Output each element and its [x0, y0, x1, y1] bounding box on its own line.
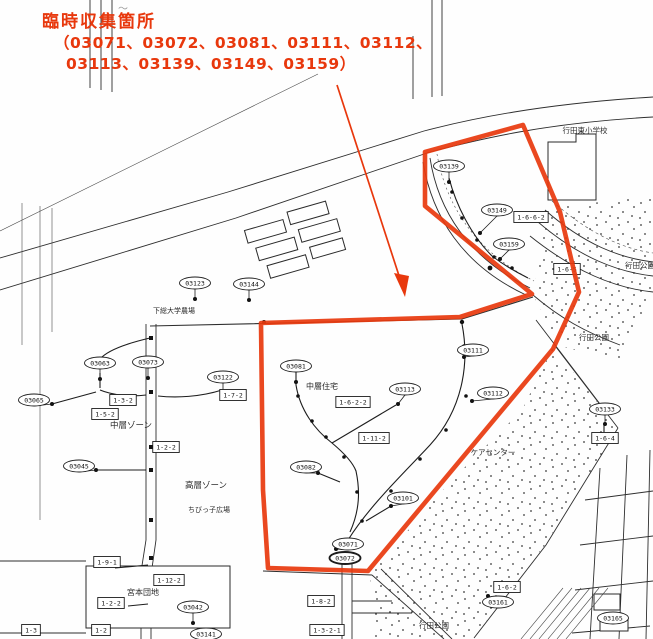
- collection-point-label: 03101: [388, 492, 419, 508]
- map-shape: 03133: [595, 405, 615, 413]
- route-number-label: 1-3-2-1: [310, 625, 344, 636]
- map-shape: [324, 435, 328, 439]
- map-shape: [296, 394, 300, 398]
- collection-point-label: 03072: [330, 552, 361, 564]
- route-number-label: 1-6-2: [494, 582, 521, 593]
- map-shape: 1-7-2: [223, 391, 243, 399]
- map-shape: 1-5-2: [95, 410, 115, 418]
- annotation-codes-line2: 03113、03139、03149、03159）: [66, 54, 432, 75]
- map-shape: [149, 518, 153, 522]
- map-shape: 03113: [395, 385, 415, 393]
- collection-point-label: 03081: [281, 360, 312, 384]
- map-shape: [318, 473, 340, 482]
- map-shape: 03122: [213, 373, 233, 381]
- collection-point-label: 03082: [291, 461, 322, 475]
- map-shape: [389, 489, 393, 493]
- route-number-label: 1-6-2-2: [336, 397, 370, 408]
- map-shape: 03159: [499, 240, 519, 248]
- route-number-label: 1-6-6-2: [514, 212, 548, 223]
- map-shape: 03071: [338, 540, 358, 548]
- map-shape: 1-3-2-1: [313, 626, 340, 634]
- map-shape: 1-2-2: [101, 599, 121, 607]
- map-shape: 03081: [286, 362, 306, 370]
- place-name-label: 中層住宅: [306, 381, 338, 391]
- place-name-label: 宮本団地: [127, 587, 159, 597]
- map-shape: 03101: [393, 494, 413, 502]
- map-shape: [360, 519, 364, 523]
- map-shape: 03149: [487, 206, 507, 214]
- housing-blocks: [243, 199, 348, 281]
- collection-point-label: 03071: [333, 538, 364, 551]
- map-shape: 03045: [69, 462, 89, 470]
- place-name-label: ケアセンター: [471, 448, 516, 457]
- place-name-label: 行田東小学校: [563, 125, 608, 135]
- collection-point-label: 03149: [478, 204, 513, 235]
- map-shape: [389, 504, 393, 508]
- place-name-label: 行田公園: [579, 332, 609, 342]
- map-shape: 1-12-2: [157, 576, 181, 584]
- map-shape: 03123: [185, 279, 205, 287]
- map-shape: [460, 320, 464, 324]
- map-shape: 1-9-1: [97, 558, 117, 566]
- map-shape: 03141: [196, 630, 216, 638]
- scanned-map-page: 0313903149031590311103112031130308103071…: [0, 0, 653, 639]
- place-name-label: ちびっ子広場: [188, 505, 230, 514]
- collection-point-label: 03123: [180, 277, 211, 301]
- map-shape: [475, 238, 479, 242]
- map-shape: [470, 399, 474, 403]
- map-shape: [294, 380, 298, 384]
- map-shape: [50, 402, 54, 406]
- collection-point-label: 03112: [470, 387, 509, 403]
- collection-point-label: 03045: [64, 460, 99, 472]
- map-shape: 03112: [483, 389, 503, 397]
- map-shape: [149, 468, 153, 472]
- collection-point-label: 03141: [191, 628, 222, 639]
- map-shape: 03111: [463, 346, 483, 354]
- route-number-label: 1-6-4: [592, 433, 619, 444]
- map-shape: [267, 255, 309, 279]
- collection-point-label: 03111: [458, 344, 489, 359]
- place-name-label: 中層ゾーン: [110, 420, 152, 431]
- map-shape: 1-11-2: [362, 434, 386, 442]
- collection-point-label: 03161: [483, 594, 514, 608]
- map-shape: [191, 621, 195, 625]
- map-shape: 03042: [183, 603, 203, 611]
- map-shape: [355, 490, 359, 494]
- school-building: [548, 134, 596, 200]
- map-shape: [310, 238, 346, 259]
- collection-point-label: 03113: [390, 383, 421, 406]
- map-shape: [244, 220, 286, 244]
- map-shape: [418, 457, 422, 461]
- map-shape: 03082: [296, 463, 316, 471]
- route-number-label: 1-3-2: [110, 395, 137, 406]
- map-shape: [510, 266, 514, 270]
- map-shape: [310, 419, 314, 423]
- map-shape: [149, 336, 153, 340]
- route-number-label: 1-12-2: [154, 575, 184, 586]
- route-number-label: 1-11-2: [359, 433, 389, 444]
- collection-point-label: 03073: [133, 356, 164, 380]
- map-shape: 1-2: [95, 626, 107, 634]
- annotation: 臨時収集箇所 （03071、03072、03081、03111、03112、 0…: [42, 12, 432, 75]
- collection-point-label: 03159: [494, 238, 525, 261]
- map-shape: [296, 372, 358, 532]
- map-shape: 1-3-2: [113, 396, 133, 404]
- map-shape: 03073: [138, 358, 158, 366]
- place-name-label: 行田公園: [625, 260, 653, 270]
- route-number-label: 1-8-2: [308, 596, 335, 607]
- map-shape: [158, 390, 222, 397]
- route-number-label: 1-2-2: [153, 442, 180, 453]
- map-shape: [52, 392, 96, 404]
- map-shape: 03065: [24, 396, 44, 404]
- map-shape: [98, 377, 102, 381]
- place-name-label: 下総大学農場: [153, 306, 195, 315]
- map-shape: [149, 390, 153, 394]
- annotation-title: 臨時収集箇所: [42, 12, 432, 33]
- map-shape: [478, 231, 482, 235]
- map-shape: 1-6-6-2: [517, 213, 544, 221]
- map-shape: 1-6-2: [497, 583, 517, 591]
- map-shape: [193, 297, 197, 301]
- map-shape: [449, 178, 528, 278]
- map-shape: 1-6-4: [595, 434, 615, 442]
- map-svg: 0313903149031590311103112031130308103071…: [0, 0, 653, 639]
- route-number-label: 1-2-2: [98, 598, 125, 609]
- map-shape: [464, 394, 468, 398]
- map-shape: 03144: [239, 280, 259, 288]
- route-number-label: 1-2: [92, 625, 111, 636]
- route-number-label: 1-3: [22, 625, 41, 636]
- route-number-label: 1-7-2: [220, 390, 247, 401]
- map-shape: 03139: [439, 162, 459, 170]
- map-shape: [603, 422, 607, 426]
- map-shape: [488, 266, 493, 271]
- map-shape: [492, 255, 496, 259]
- collection-point-label: 03139: [434, 160, 465, 184]
- map-shape: 1-8-2: [311, 597, 331, 605]
- map-shape: 03161: [488, 598, 508, 606]
- map-shape: [0, 561, 86, 633]
- map-shape: [450, 190, 454, 194]
- annotation-codes-line1: （03071、03072、03081、03111、03112、: [54, 33, 432, 54]
- map-shape: 03063: [90, 359, 110, 367]
- annotation-arrow: [337, 85, 403, 288]
- map-shape: 1-2-2: [156, 443, 176, 451]
- collection-point-label: 03065: [19, 394, 55, 406]
- map-shape: 03072: [335, 554, 355, 562]
- map-shape: 03165: [603, 614, 623, 622]
- map-shape: [396, 402, 400, 406]
- map-shape: 1-6-2-2: [339, 398, 366, 406]
- map-shape: [256, 237, 298, 261]
- map-shape: [298, 219, 340, 243]
- map-shape: [480, 216, 497, 233]
- place-name-label: 行田公園: [419, 620, 449, 630]
- route-number-label: 1-9-1: [94, 557, 121, 568]
- route-number-label: 1-5-2: [92, 409, 119, 420]
- map-shape: [342, 455, 346, 459]
- map-shape: [460, 216, 464, 220]
- map-shape: [287, 201, 329, 225]
- annotation-arrowhead: [394, 273, 409, 297]
- map-shape: [94, 468, 98, 472]
- map-shape: [146, 376, 150, 380]
- map-shape: [0, 74, 318, 231]
- map-shape: [366, 506, 391, 521]
- map-shape: [444, 428, 448, 432]
- map-shape: 1-3: [25, 626, 37, 634]
- map-shape: [247, 298, 251, 302]
- collection-point-label: 03144: [234, 278, 265, 302]
- place-name-label: 高層ゾーン: [185, 480, 227, 491]
- collection-point-label: 03063: [85, 357, 116, 381]
- map-shape: [149, 556, 153, 560]
- map-shape: [594, 594, 620, 610]
- collection-point-label: 03165: [598, 612, 629, 624]
- map-shape: [447, 180, 451, 184]
- park-areas-layer: [370, 196, 653, 639]
- map-shape: [498, 257, 502, 261]
